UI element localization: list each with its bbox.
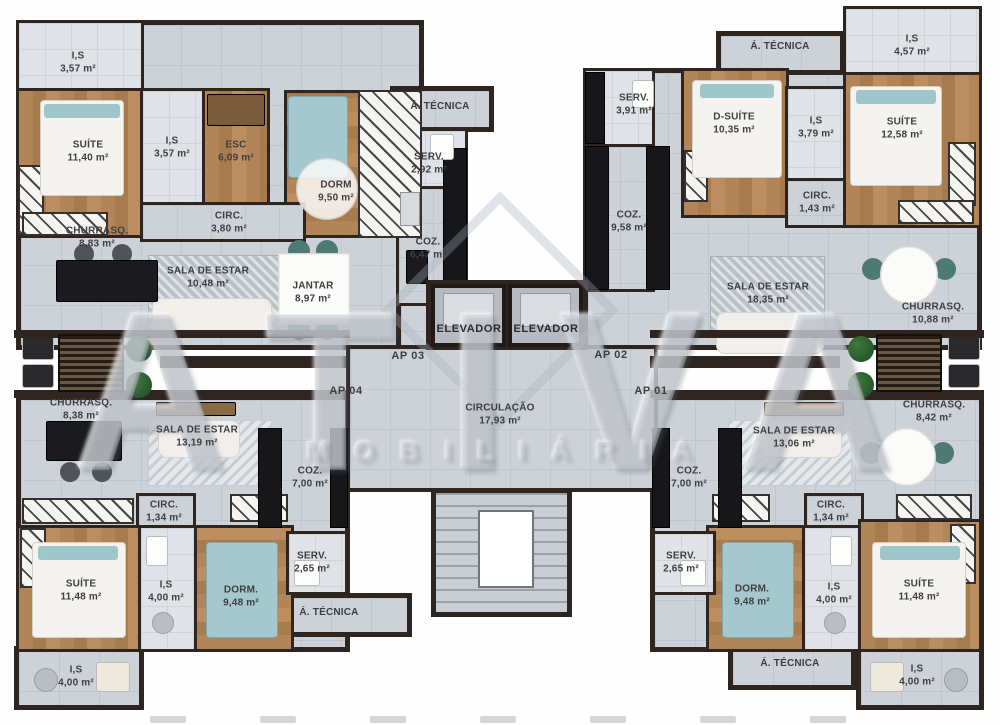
room-label-suite-top-left: SUÍTE11,40 m² bbox=[67, 140, 108, 165]
bbq-table bbox=[56, 260, 158, 302]
room-label-coz-top-left: COZ.6,47 m² bbox=[410, 237, 446, 262]
esc-desk bbox=[207, 94, 265, 126]
site-mark bbox=[150, 716, 186, 723]
bath-sink bbox=[96, 662, 130, 692]
unit-label-ap03: AP 03 bbox=[391, 350, 424, 364]
wardrobe-hatch bbox=[948, 142, 976, 206]
site-mark bbox=[590, 716, 626, 723]
room-label-is-top-right: I,S3,79 m² bbox=[798, 116, 834, 141]
room-label-serv-bot-left: SERV.2,65 m² bbox=[294, 551, 330, 576]
room-label-circ-bot-right: CIRC.1,34 m² bbox=[813, 500, 849, 525]
round-dining-table bbox=[880, 246, 938, 304]
bbq-sink bbox=[948, 364, 980, 388]
plant bbox=[848, 372, 874, 398]
wardrobe-hatch bbox=[22, 498, 134, 524]
elevator-car bbox=[443, 293, 494, 327]
floor-plan: ATIVA MOBILIÁRIA I,S3,57 m² SUÍTE11,40 m… bbox=[0, 0, 1000, 725]
site-mark bbox=[700, 716, 736, 723]
room-label-circ-top-right: CIRC.1,43 m² bbox=[799, 191, 835, 216]
elevator-shaft-left bbox=[431, 284, 506, 347]
bbq-chair bbox=[60, 462, 80, 482]
party-wall-right-mid bbox=[650, 356, 840, 368]
shower-drain bbox=[152, 612, 174, 634]
room-label-churrasq-bot-right: CHURRASQ.8,42 m² bbox=[903, 400, 965, 425]
room-label-churrasq-top-left: CHURRASQ.8,83 m² bbox=[66, 226, 128, 251]
site-mark bbox=[810, 716, 846, 723]
room-label-atec-top-left: Á. TÉCNICA bbox=[410, 101, 469, 114]
bed-pillow bbox=[38, 546, 118, 560]
bbq-sink bbox=[948, 336, 980, 360]
room-label-atec-top-right: Á. TÉCNICA bbox=[750, 41, 809, 54]
plant bbox=[126, 336, 152, 362]
room-label-is-bot-left-2: I,S4,00 m² bbox=[58, 665, 94, 690]
room-label-circ-bot-left: CIRC.1,34 m² bbox=[146, 500, 182, 525]
room-label-is-top-left: I,S3,57 m² bbox=[60, 51, 96, 76]
room-label-churrasq-top-right: CHURRASQ.10,88 m² bbox=[902, 302, 964, 327]
room-label-coz-bot-left: COZ.7,00 m² bbox=[292, 466, 328, 491]
bed-pillow bbox=[856, 90, 936, 104]
room-label-atec-bot-left: Á. TÉCNICA bbox=[299, 607, 358, 620]
room-label-suite-bot-left: SUÍTE11,48 m² bbox=[60, 579, 101, 604]
kitchen-counter bbox=[652, 428, 670, 528]
kitchen-counter bbox=[646, 146, 670, 290]
room-label-circ-top-left: CIRC.3,80 m² bbox=[211, 211, 247, 236]
tv-rack bbox=[764, 402, 844, 416]
site-mark bbox=[480, 716, 516, 723]
plant bbox=[848, 336, 874, 362]
site-mark bbox=[260, 716, 296, 723]
room-label-is-top-left-2: I,S3,57 m² bbox=[154, 136, 190, 161]
room-label-coz-top-right: COZ.9,58 m² bbox=[611, 210, 647, 235]
toilet bbox=[830, 536, 852, 566]
bed-pillow bbox=[880, 546, 960, 560]
shower-drain bbox=[944, 668, 968, 692]
elevator-left-label: ELEVADOR bbox=[436, 323, 501, 337]
room-label-serv-bot-right: SERV.2,65 m² bbox=[663, 551, 699, 576]
room-label-sala-top-left: SALA DE ESTAR10,48 m² bbox=[167, 266, 249, 291]
elevator-right-label: ELEVADOR bbox=[513, 323, 578, 337]
kitchen-counter bbox=[585, 146, 609, 290]
bbq-sink bbox=[22, 364, 54, 388]
room-label-serv-top-left: SERV.2,92 m² bbox=[411, 152, 447, 177]
bbq-sink bbox=[22, 336, 54, 360]
unit-label-ap04: AP 04 bbox=[329, 385, 362, 399]
site-mark bbox=[370, 716, 406, 723]
room-label-sala-top-right: SALA DE ESTAR18,35 m² bbox=[727, 282, 809, 307]
room-label-d-suite: D-SUÍTE10,35 m² bbox=[713, 112, 755, 137]
toilet bbox=[146, 536, 168, 566]
room-label-is-top-right-2: I,S4,57 m² bbox=[894, 34, 930, 59]
bed-pillow bbox=[700, 84, 774, 98]
room-label-sala-bot-right: SALA DE ESTAR13,06 m² bbox=[753, 426, 835, 451]
circulation-label: CIRCULAÇÃO17,93 m² bbox=[465, 403, 534, 428]
party-wall-left-mid bbox=[160, 356, 350, 368]
room-label-suite-top-right: SUÍTE12,58 m² bbox=[881, 117, 923, 142]
room-label-churrasq-bot-left: CHURRASQ.8,38 m² bbox=[50, 398, 112, 423]
bbq-table bbox=[46, 421, 122, 461]
wardrobe-hatch bbox=[898, 200, 974, 224]
wardrobe-hatch bbox=[896, 494, 972, 520]
room-label-coz-bot-right: COZ.7,00 m² bbox=[671, 466, 707, 491]
room-label-esc: ESC6,09 m² bbox=[218, 140, 254, 165]
elevator-shaft-right bbox=[508, 284, 583, 347]
bbq-chair bbox=[92, 462, 112, 482]
fridge bbox=[400, 192, 420, 226]
room-label-sala-bot-left: SALA DE ESTAR13,19 m² bbox=[156, 425, 238, 450]
room-label-is-bot-right-2: I,S4,00 m² bbox=[899, 664, 935, 689]
room-label-jantar: JANTAR8,97 m² bbox=[292, 281, 333, 306]
kitchen-counter bbox=[258, 428, 282, 528]
churrasqueira-grill bbox=[58, 334, 124, 392]
kitchen-counter bbox=[718, 428, 742, 528]
serv-counter bbox=[585, 72, 605, 144]
room-label-dorm-bot-right: DORM.9,48 m² bbox=[734, 584, 770, 609]
elevator-car bbox=[520, 293, 571, 327]
room-label-serv-top-right: SERV.3,91 m² bbox=[616, 93, 652, 118]
bed-pillow bbox=[44, 104, 120, 118]
kitchen-counter bbox=[330, 428, 348, 528]
round-dining-table bbox=[878, 428, 936, 486]
churrasqueira-grill bbox=[876, 334, 942, 392]
room-label-suite-bot-right: SUÍTE11,48 m² bbox=[898, 579, 939, 604]
room-label-is-bot-left: I,S4,00 m² bbox=[148, 580, 184, 605]
stair-landing bbox=[478, 510, 534, 588]
room-label-atec-bot-right: Á. TÉCNICA bbox=[760, 658, 819, 671]
room-label-dorm-bot-left: DORM.9,48 m² bbox=[223, 585, 259, 610]
unit-label-ap02: AP 02 bbox=[594, 349, 627, 363]
shower-drain bbox=[34, 668, 58, 692]
room-label-is-bot-right: I,S4,00 m² bbox=[816, 582, 852, 607]
plant bbox=[126, 372, 152, 398]
unit-label-ap01: AP 01 bbox=[634, 385, 667, 399]
tv-rack bbox=[156, 402, 236, 416]
room-label-dorm-top-left: DORM9,50 m² bbox=[318, 180, 354, 205]
shower-drain bbox=[824, 612, 846, 634]
